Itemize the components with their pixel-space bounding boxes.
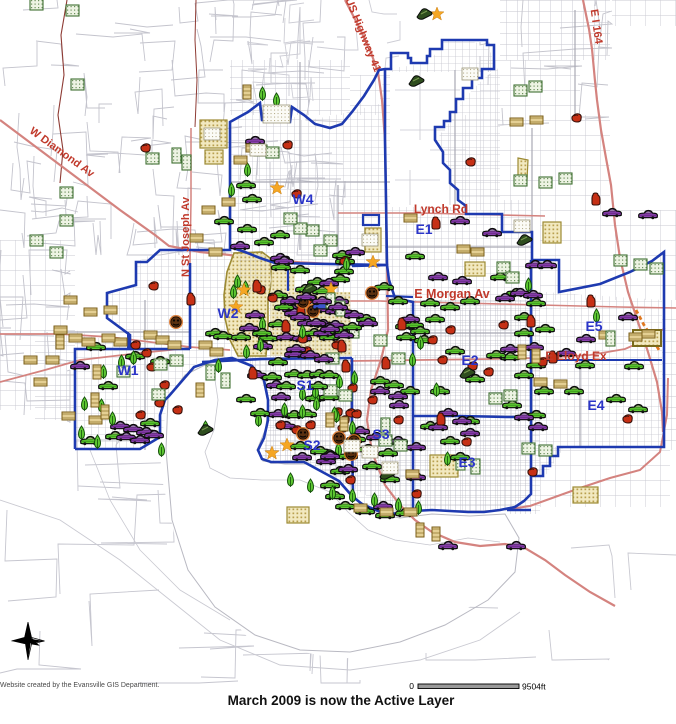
svg-text:E Lloyd Ex: E Lloyd Ex — [545, 349, 607, 363]
svg-text:Lynch Rd: Lynch Rd — [414, 202, 468, 216]
svg-text:E4: E4 — [587, 397, 604, 413]
svg-text:Website created by the Evansvi: Website created by the Evansville GIS De… — [0, 682, 159, 689]
svg-text:E3: E3 — [458, 454, 475, 470]
svg-text:9504ft: 9504ft — [522, 682, 546, 692]
svg-text:S2: S2 — [303, 437, 320, 453]
svg-text:W2: W2 — [218, 305, 239, 321]
svg-text:N St Joseph Av: N St Joseph Av — [180, 196, 192, 277]
svg-text:S1: S1 — [296, 377, 313, 393]
svg-text:E5: E5 — [585, 318, 602, 334]
svg-text:0: 0 — [409, 681, 414, 691]
svg-text:W1: W1 — [118, 362, 139, 378]
svg-text:E Morgan Av: E Morgan Av — [414, 287, 490, 301]
svg-text:E2: E2 — [461, 352, 478, 368]
svg-text:March 2009 is now the Active L: March 2009 is now the Active Layer — [228, 693, 456, 708]
svg-text:E1: E1 — [415, 221, 432, 237]
svg-text:W4: W4 — [293, 191, 314, 207]
svg-text:S3: S3 — [372, 426, 389, 442]
